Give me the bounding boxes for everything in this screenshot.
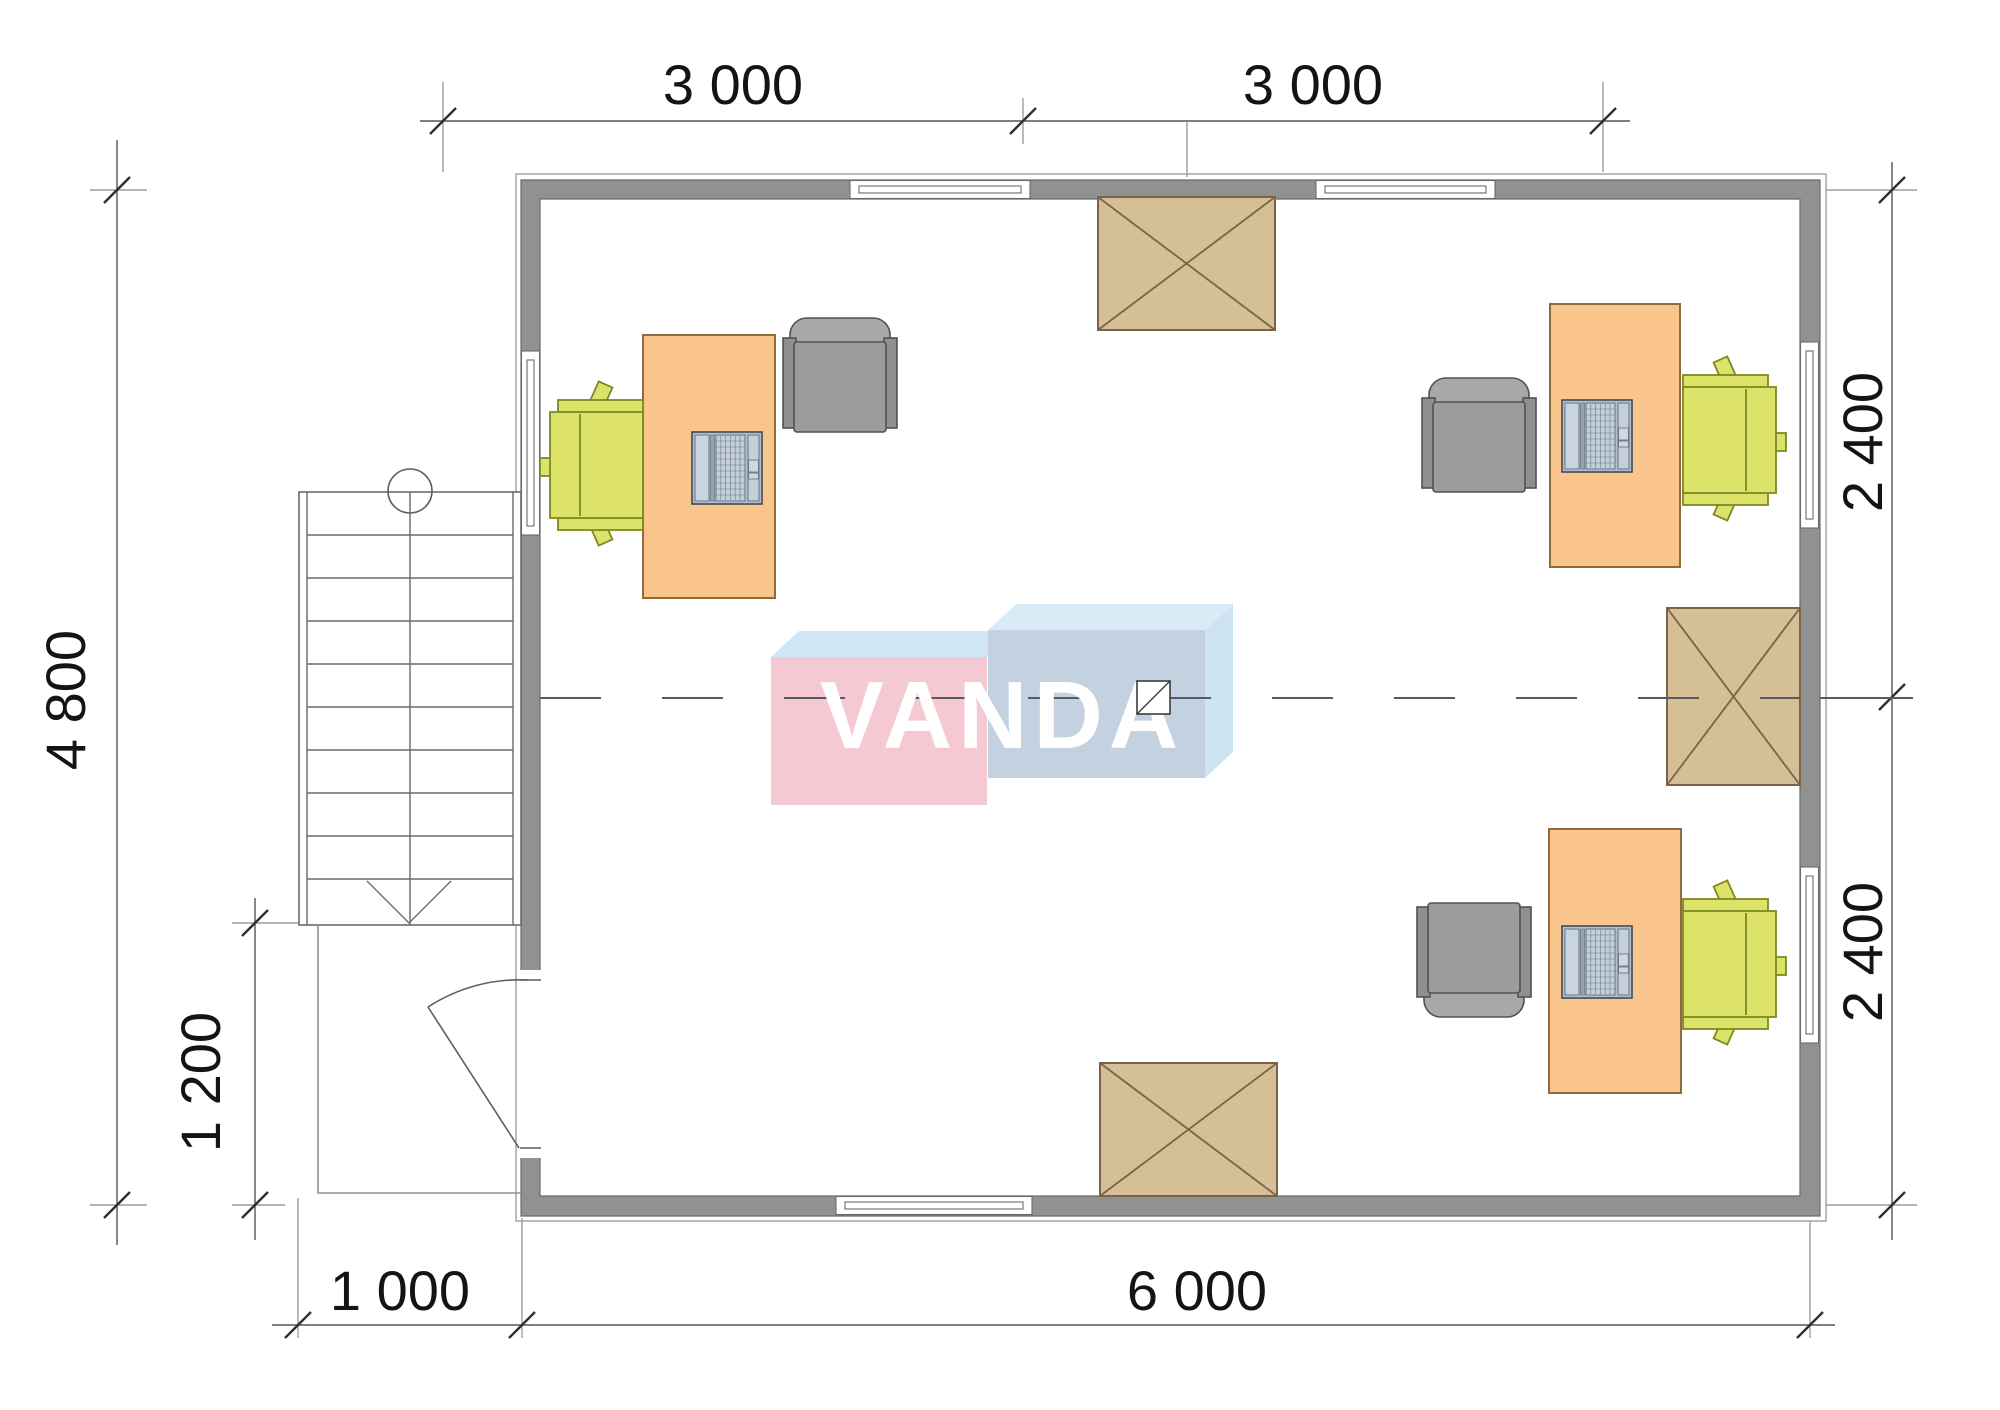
- porch-outline: [318, 925, 521, 1193]
- watermark-text: VANDA: [820, 662, 1184, 769]
- logo-right-side-face: [1205, 604, 1233, 778]
- door-swing-arc: [428, 980, 528, 1007]
- dim-label-left: 4 800: [34, 630, 97, 770]
- green-task-chair: [1683, 356, 1786, 520]
- hatched-box-bottom: [1100, 1063, 1277, 1196]
- logo-right-top-face: [988, 604, 1233, 630]
- window-right-bottom: [1801, 867, 1819, 1043]
- dim-label-top-right: 3 000: [1243, 53, 1383, 116]
- grey-armchair: [783, 318, 897, 432]
- dim-label-bottom-right: 6 000: [1127, 1259, 1267, 1322]
- door-opening: [520, 970, 541, 1158]
- green-task-chair: [540, 381, 643, 545]
- dim-label-top-left: 3 000: [663, 53, 803, 116]
- hatched-box-right: [1667, 608, 1800, 785]
- window-bottom: [836, 1197, 1032, 1215]
- floor-plan-drawing: 3 000 3 000 4 800 1 200: [0, 0, 2000, 1410]
- entrance-door: [428, 970, 541, 1158]
- laptop: [1562, 926, 1632, 998]
- window-top-right: [1316, 181, 1495, 199]
- window-left: [522, 351, 540, 535]
- green-task-chair: [1683, 880, 1786, 1044]
- window-top-left: [850, 181, 1030, 199]
- workstation-top-left: [540, 318, 897, 598]
- top-dimension: 3 000 3 000: [420, 53, 1630, 177]
- workstation-top-right: [1422, 304, 1786, 567]
- left-dimension: 4 800: [34, 140, 147, 1245]
- grey-armchair: [1417, 903, 1531, 1017]
- workstation-bottom-right: [1417, 829, 1786, 1093]
- bottom-dimension: 1 000 6 000: [272, 1198, 1835, 1338]
- dim-label-left-inner: 1 200: [169, 1012, 232, 1152]
- floor-plan-page: 3 000 3 000 4 800 1 200: [0, 0, 2000, 1410]
- door-leaf: [428, 1007, 519, 1148]
- center-marker: [1137, 681, 1170, 714]
- grey-armchair: [1422, 378, 1536, 492]
- left-inner-dimension: 1 200: [169, 898, 325, 1240]
- laptop: [1562, 400, 1632, 472]
- dim-label-right-top: 2 400: [1831, 372, 1894, 512]
- staircase: [299, 469, 521, 925]
- dim-label-bottom-left: 1 000: [330, 1259, 470, 1322]
- laptop: [692, 432, 762, 504]
- dim-label-right-bottom: 2 400: [1831, 882, 1894, 1022]
- logo-left-top-face: [771, 631, 1015, 657]
- hatched-box-top: [1098, 197, 1275, 330]
- window-right-top: [1801, 342, 1819, 528]
- right-dimension: 2 400 2 400: [1826, 162, 1917, 1240]
